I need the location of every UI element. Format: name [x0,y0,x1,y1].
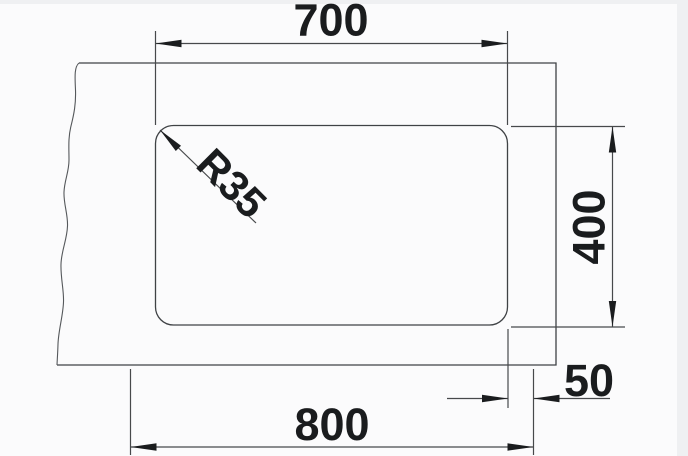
dim-50-arrow-right [534,395,560,402]
dimension-drawing-canvas: 700 400 50 800 R35 [0,0,688,456]
dim-700-arrow-left [156,40,182,47]
dim-400-arrow-top [609,127,616,153]
dim-800-label: 800 [294,399,369,450]
countertop-outline [57,63,556,365]
radius-arrow [160,130,181,151]
dim-400-label: 400 [564,189,615,264]
radius-label: R35 [188,139,276,227]
drawing-page: 700 400 50 800 R35 [0,0,688,456]
dim-700-label: 700 [293,0,368,46]
dim-800-arrow-right [508,443,534,450]
dim-50-label: 50 [564,355,614,406]
dim-800-arrow-left [131,443,157,450]
dim-50-arrow-left [482,395,508,402]
dim-700-arrow-right [482,40,508,47]
dim-400-arrow-bottom [609,301,616,327]
countertop-break-line [57,63,79,365]
